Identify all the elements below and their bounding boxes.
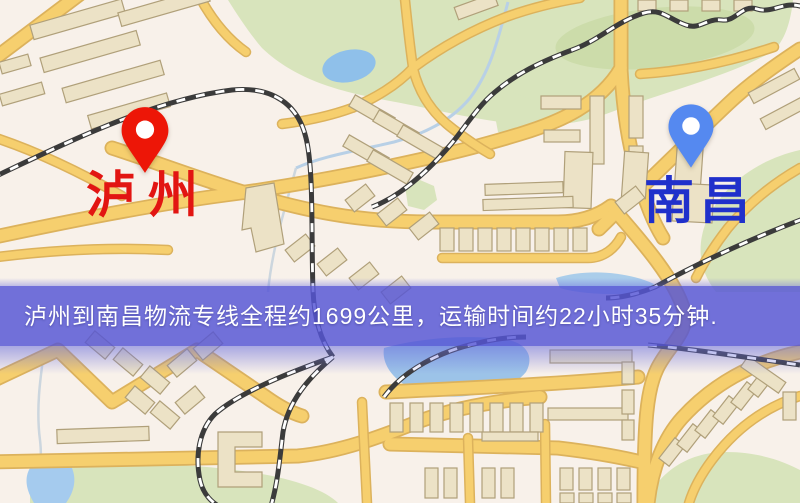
origin-pin-icon (119, 104, 171, 176)
map-image (0, 0, 800, 503)
logistics-route-map: 泸州 南昌 泸州到南昌物流专线全程约1699公里，运输时间约22小时35分钟. (0, 0, 800, 503)
origin-city-label: 泸州 (86, 170, 210, 220)
route-info-text: 泸州到南昌物流专线全程约1699公里，运输时间约22小时35分钟. (0, 286, 800, 346)
destination-city-label: 南昌 (644, 176, 756, 226)
destination-pin-icon (666, 102, 716, 170)
route-info-banner: 泸州到南昌物流专线全程约1699公里，运输时间约22小时35分钟. (0, 286, 800, 346)
